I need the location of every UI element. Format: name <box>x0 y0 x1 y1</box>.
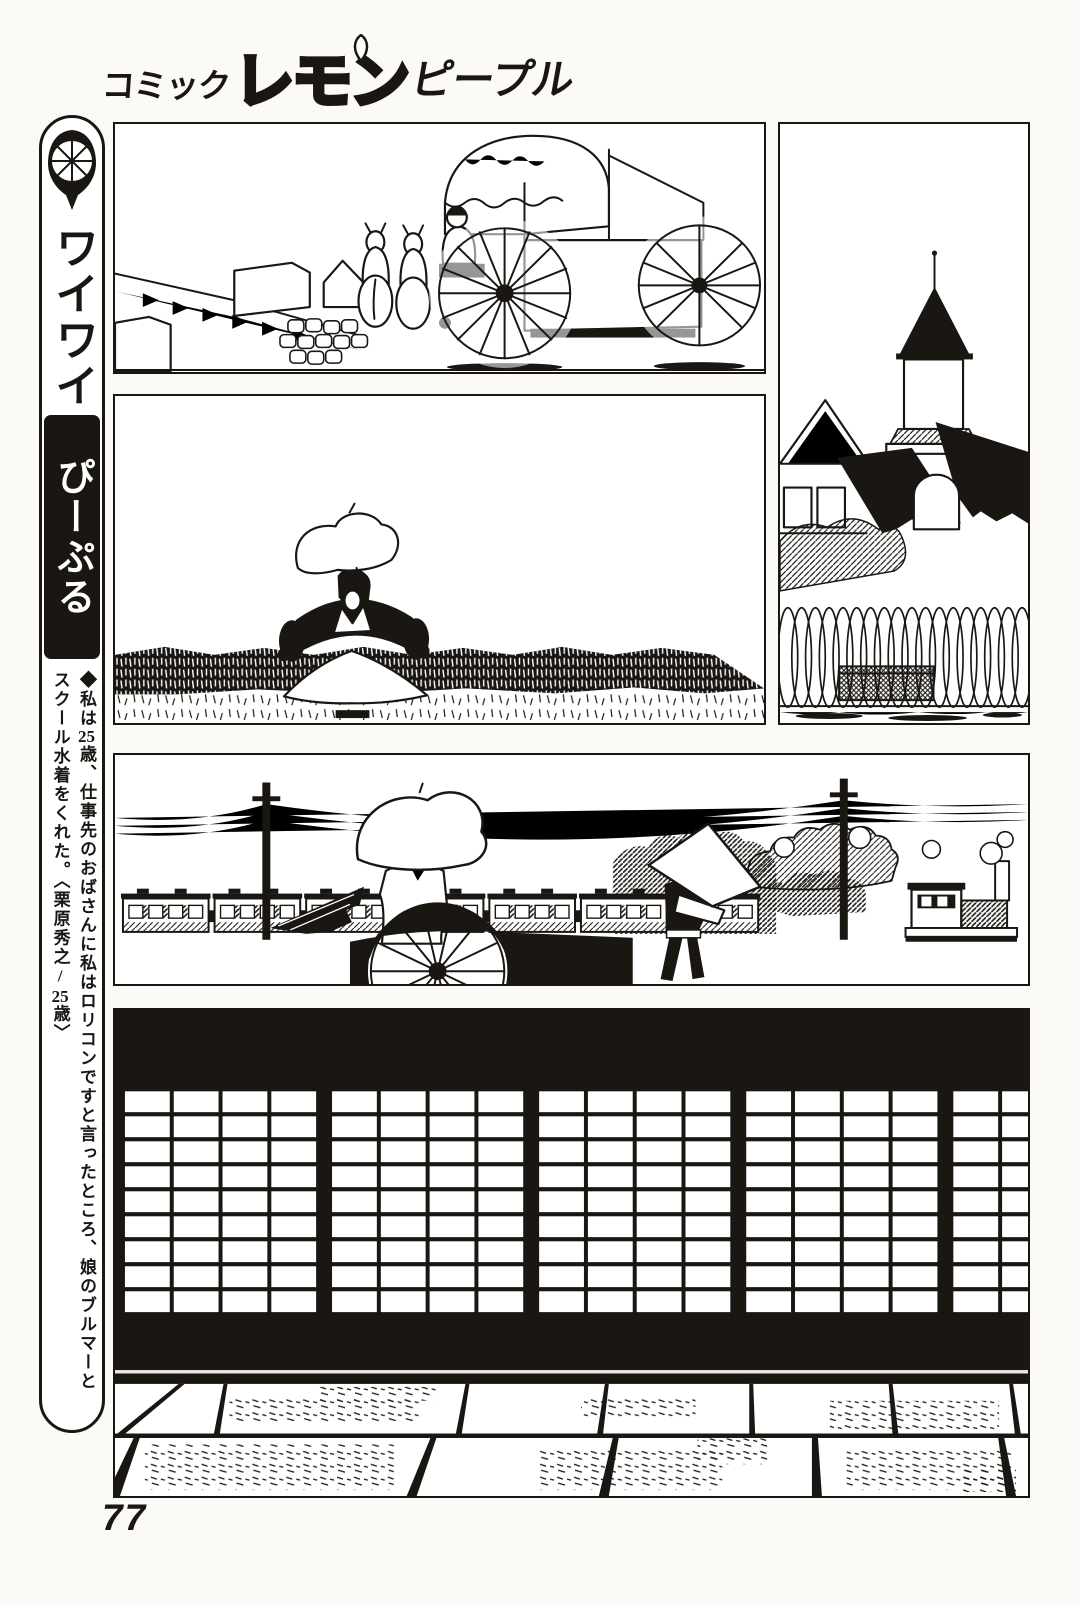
grass-horizon <box>115 643 764 698</box>
series-title-bottom: ぴーぷる <box>53 457 91 617</box>
panel-carriage <box>113 122 766 374</box>
shoji-illustration <box>115 1010 1028 1496</box>
foreground-grass <box>115 690 764 723</box>
horses <box>358 223 430 369</box>
veranda-shadow-band <box>115 1314 1028 1383</box>
tower <box>886 251 980 454</box>
masthead-prefix: コミック <box>100 59 231 109</box>
train-illustration <box>115 755 1028 984</box>
ground-shadow <box>780 712 1028 721</box>
lemon-slice-icon <box>45 126 99 219</box>
series-title-bottom-block: ぴーぷる <box>44 415 100 659</box>
series-sidebar: ワイワイ ぴーぷる ◆私は25歳、仕事先のおばさんに私はロリコンですと言ったとこ… <box>39 115 105 1433</box>
carriage-illustration <box>115 124 764 372</box>
masthead-suffix: ピープル <box>406 46 579 109</box>
gate <box>839 666 933 700</box>
panel-shoji-interior <box>113 1008 1030 1498</box>
building-illustration <box>780 124 1028 723</box>
panel-building-fence <box>778 122 1030 725</box>
masthead-title: レモン <box>234 55 408 109</box>
panel-field-parasol <box>113 394 766 725</box>
field-illustration <box>115 396 764 723</box>
page-number: 77 <box>102 1497 147 1539</box>
caption-text-3: 歳〉 <box>51 1005 70 1043</box>
caption-age-2: 25 <box>51 988 70 1005</box>
series-title-top: ワイワイ <box>50 225 94 409</box>
stone-pile <box>280 319 381 364</box>
shoji-lattice <box>115 1089 1028 1314</box>
tatami-floor <box>115 1384 1028 1496</box>
parasol <box>357 784 486 870</box>
bushes <box>780 519 1004 591</box>
telegraph-wires <box>115 800 1028 839</box>
manga-page: コミック レモン ピープル ワイワイ ぴーぷる ◆私は25歳、仕事先のおばさんに… <box>0 0 1080 1607</box>
panel-train-rickshaw <box>113 753 1030 986</box>
caption-text-1: ◆私は <box>77 671 96 728</box>
reader-caption: ◆私は25歳、仕事先のおばさんに私はロリコンですと言ったところ、娘のブルマーとス… <box>45 671 99 1397</box>
caption-age-1: 25 <box>77 728 96 745</box>
dark-transom <box>115 1010 1028 1091</box>
magazine-masthead: コミック レモン ピープル <box>102 46 573 109</box>
horse <box>396 225 430 369</box>
lemon-leaf-icon <box>350 34 372 67</box>
